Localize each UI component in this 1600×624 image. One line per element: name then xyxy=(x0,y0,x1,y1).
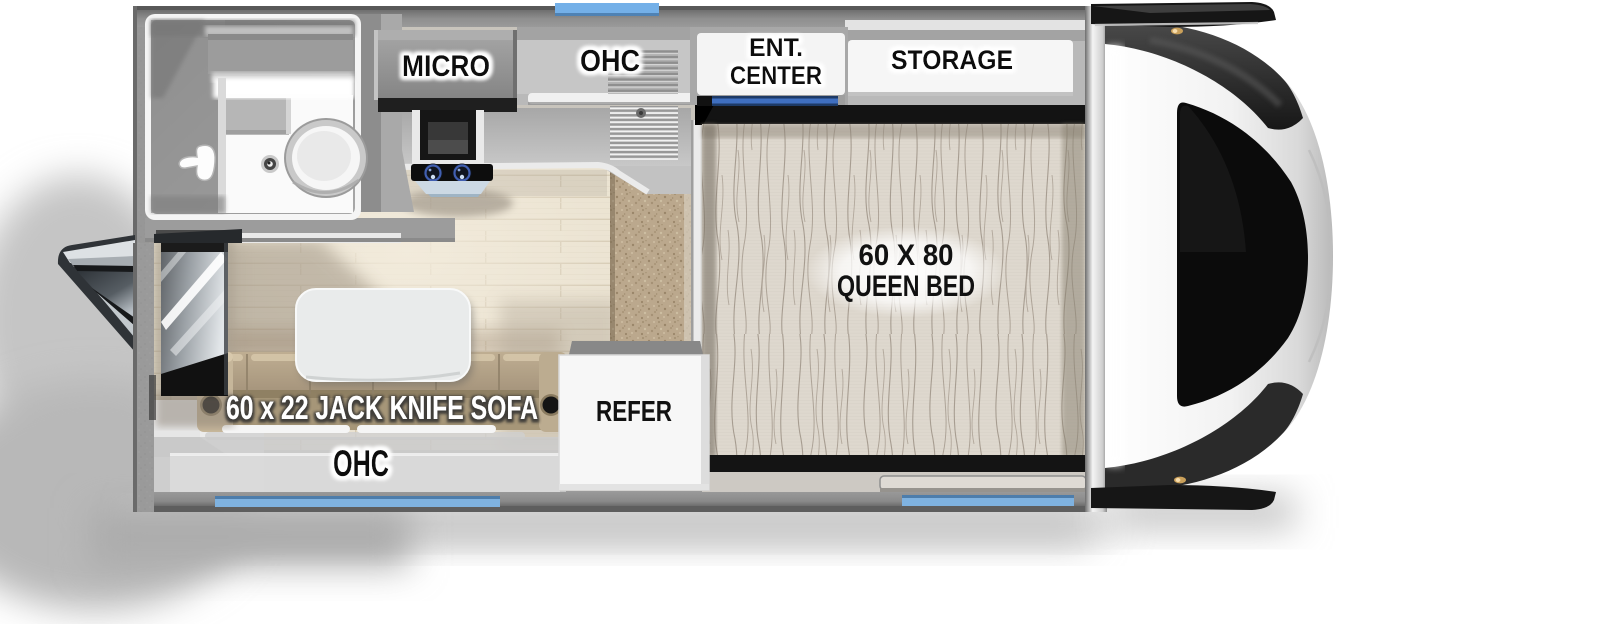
svg-text:ENT.: ENT. xyxy=(749,34,803,62)
svg-text:60 X 80: 60 X 80 xyxy=(859,239,954,272)
svg-text:QUEEN BED: QUEEN BED xyxy=(837,270,975,303)
svg-text:OHC: OHC xyxy=(580,43,640,78)
svg-text:CENTER: CENTER xyxy=(730,62,822,90)
svg-text:REFER: REFER xyxy=(596,396,672,428)
svg-text:60 x 22 JACK KNIFE SOFA: 60 x 22 JACK KNIFE SOFA xyxy=(226,389,538,426)
svg-text:MICRO: MICRO xyxy=(402,50,490,83)
svg-text:STORAGE: STORAGE xyxy=(891,45,1013,75)
svg-text:OHC: OHC xyxy=(333,443,389,484)
